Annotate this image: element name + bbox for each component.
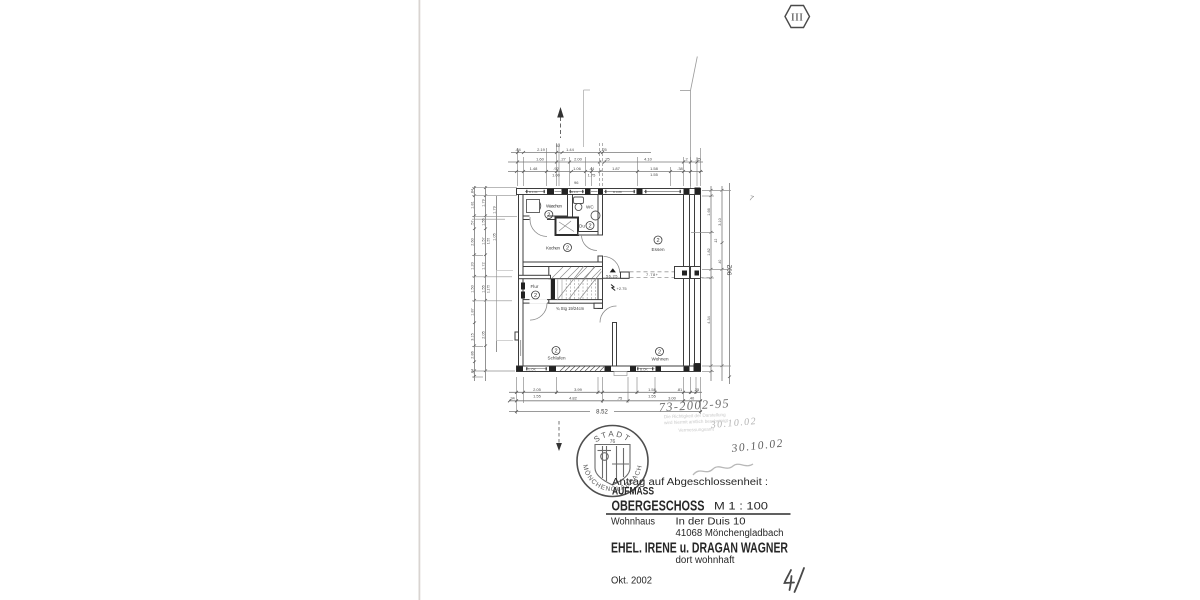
- svg-text:1.55: 1.55: [650, 172, 659, 177]
- svg-text:1.06: 1.06: [573, 166, 582, 171]
- svg-text:1.55: 1.55: [533, 394, 542, 399]
- svg-text:2.19: 2.19: [537, 147, 546, 152]
- svg-text:Essen: Essen: [652, 247, 665, 252]
- svg-text:4.34: 4.34: [707, 316, 711, 323]
- svg-text:III: III: [791, 12, 804, 24]
- svg-text:2: 2: [658, 350, 661, 356]
- svg-text:Du: Du: [579, 224, 585, 229]
- svg-text:.40: .40: [718, 260, 722, 265]
- svg-text:1.66: 1.66: [707, 208, 711, 215]
- svg-text:dort wohnhaft: dort wohnhaft: [676, 555, 735, 566]
- svg-text:.84: .84: [471, 189, 475, 194]
- svg-text:1.58: 1.58: [650, 166, 659, 171]
- svg-text:1.87: 1.87: [471, 308, 475, 315]
- svg-text:1.75: 1.75: [588, 173, 597, 178]
- svg-text:2: 2: [588, 224, 591, 230]
- svg-text:1.72: 1.72: [482, 262, 486, 269]
- svg-text:B.0.88: B.0.88: [613, 190, 622, 194]
- svg-text:B.1.0: B.1.0: [571, 190, 578, 194]
- svg-text:2: 2: [534, 293, 537, 299]
- svg-text:.38: .38: [677, 166, 683, 171]
- svg-text:1.57: 1.57: [482, 237, 486, 244]
- svg-text:2.86: 2.86: [471, 351, 475, 358]
- svg-text:.84: .84: [515, 147, 521, 152]
- svg-text:2: 2: [547, 213, 550, 219]
- svg-text:.25: .25: [695, 157, 701, 162]
- svg-text:3.10: 3.10: [718, 218, 722, 225]
- svg-text:Schlafen: Schlafen: [548, 356, 566, 361]
- svg-text:OBERGESCHOSS: OBERGESCHOSS: [612, 499, 705, 515]
- svg-text:2.60: 2.60: [471, 238, 475, 245]
- svg-text:.81: .81: [677, 387, 683, 392]
- svg-text:2: 2: [554, 349, 557, 355]
- svg-text:2.05: 2.05: [533, 387, 542, 392]
- svg-text:.84: .84: [471, 369, 475, 374]
- svg-text:1.82: 1.82: [707, 248, 711, 255]
- svg-text:2.05: 2.05: [482, 331, 486, 338]
- svg-text:Kochen: Kochen: [546, 246, 560, 251]
- svg-text:AUFMASS: AUFMASS: [612, 486, 654, 498]
- svg-text:.27: .27: [560, 157, 566, 162]
- svg-text:1.87: 1.87: [612, 166, 621, 171]
- svg-text:96: 96: [574, 180, 579, 185]
- svg-text:7.78+: 7.78+: [646, 272, 659, 277]
- svg-text:1.79: 1.79: [482, 199, 486, 206]
- svg-text:B.OK: B.OK: [640, 367, 648, 371]
- svg-text:52: 52: [556, 143, 561, 148]
- svg-text:1.55: 1.55: [482, 285, 486, 292]
- svg-text:4.82: 4.82: [569, 395, 578, 400]
- svg-text:Wohnen: Wohnen: [652, 357, 669, 362]
- svg-text:.25: .25: [604, 157, 610, 162]
- svg-text:3.99: 3.99: [574, 387, 583, 392]
- svg-text:.44: .44: [589, 166, 595, 171]
- svg-text:+2.75: +2.75: [617, 286, 628, 291]
- svg-text:.25: .25: [601, 147, 607, 152]
- svg-text:Flur: Flur: [531, 284, 539, 289]
- svg-text:1.58: 1.58: [648, 387, 657, 392]
- svg-text:2: 2: [656, 238, 659, 244]
- svg-text:1.48: 1.48: [530, 166, 539, 171]
- svg-text:1.00: 1.00: [552, 173, 561, 178]
- svg-text:1.55: 1.55: [487, 238, 491, 244]
- svg-text:1.79: 1.79: [493, 206, 497, 213]
- svg-text:4.10: 4.10: [644, 157, 653, 162]
- svg-text:In der Duis 10: In der Duis 10: [676, 517, 746, 528]
- svg-text:Waschen: Waschen: [546, 204, 562, 209]
- svg-text:.75: .75: [617, 395, 623, 400]
- svg-text:2.00: 2.00: [574, 157, 583, 162]
- svg-text:B.1.01: B.1.01: [529, 190, 538, 194]
- svg-text:56,25: 56,25: [606, 274, 618, 279]
- svg-text:3.15: 3.15: [471, 333, 475, 340]
- svg-text:1.60: 1.60: [536, 157, 545, 162]
- svg-text:1.50: 1.50: [471, 285, 475, 292]
- svg-text:¾ Stg 19/24cm: ¾ Stg 19/24cm: [556, 306, 585, 311]
- svg-text:41068 Mönchengladbach: 41068 Mönchengladbach: [676, 528, 784, 539]
- svg-text:.92: .92: [553, 166, 559, 171]
- svg-text:.12: .12: [714, 239, 718, 244]
- svg-text:1.44: 1.44: [566, 147, 575, 152]
- svg-text:M 1 : 100: M 1 : 100: [714, 501, 768, 513]
- svg-text:WC: WC: [586, 205, 594, 210]
- svg-text:1.20: 1.20: [471, 262, 475, 269]
- svg-text:8.52: 8.52: [596, 410, 608, 416]
- svg-text:1.55: 1.55: [648, 394, 657, 399]
- svg-text:.57: .57: [471, 220, 475, 225]
- svg-text:Okt. 2002: Okt. 2002: [611, 576, 652, 587]
- svg-text:1.175: 1.175: [487, 285, 491, 293]
- svg-text:1.81: 1.81: [471, 201, 475, 208]
- svg-text:Wohnhaus: Wohnhaus: [611, 517, 655, 528]
- svg-text:1.05: 1.05: [493, 233, 497, 240]
- svg-text:.34: .34: [509, 395, 515, 400]
- svg-text:2: 2: [566, 246, 569, 252]
- svg-text:.25: .25: [694, 387, 700, 392]
- svg-text:b.OK: b.OK: [529, 367, 537, 371]
